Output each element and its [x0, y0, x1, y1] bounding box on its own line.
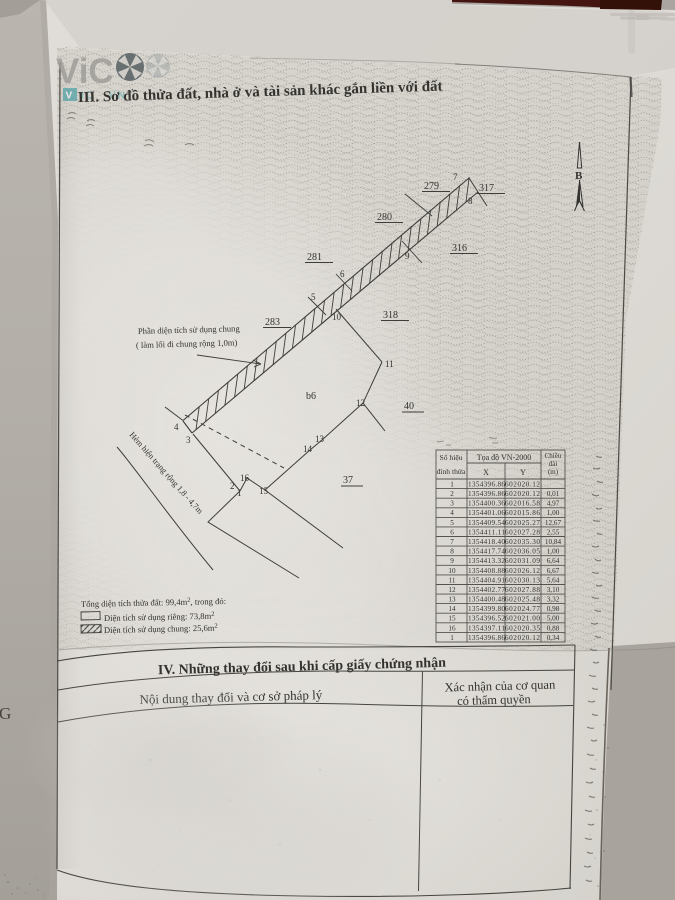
svg-text:602020.12: 602020.12	[505, 481, 540, 489]
svg-text:7: 7	[453, 172, 458, 182]
svg-text:B: B	[575, 170, 583, 182]
svg-text:3: 3	[450, 500, 454, 508]
svg-text:37: 37	[343, 475, 353, 486]
svg-text:1354417.74: 1354417.74	[468, 548, 505, 556]
svg-text:7: 7	[450, 538, 454, 546]
svg-text:1354397.11: 1354397.11	[468, 624, 505, 632]
svg-text:(m): (m)	[548, 468, 559, 476]
svg-text:16: 16	[240, 473, 250, 483]
svg-text:dài: dài	[549, 460, 558, 468]
svg-text:3: 3	[186, 435, 191, 445]
svg-text:1,00: 1,00	[547, 509, 560, 517]
svg-text:V: V	[66, 91, 73, 102]
svg-text:Y: Y	[520, 468, 526, 477]
svg-text:1: 1	[450, 481, 454, 489]
svg-text:4,97: 4,97	[547, 500, 560, 508]
svg-text:Chiều: Chiều	[545, 452, 562, 460]
svg-text:8: 8	[468, 196, 473, 206]
svg-text:3,10: 3,10	[547, 586, 560, 594]
svg-text:1354396.86: 1354396.86	[468, 634, 505, 642]
svg-text:317: 317	[479, 183, 494, 194]
svg-text:602027.88: 602027.88	[505, 586, 540, 594]
svg-text:1354401.06: 1354401.06	[468, 509, 505, 517]
svg-text:1354400.48: 1354400.48	[468, 596, 505, 604]
svg-text:280: 280	[377, 212, 392, 223]
svg-text:1354396.52: 1354396.52	[468, 615, 505, 623]
svg-text:40: 40	[404, 401, 414, 412]
svg-text:12: 12	[356, 398, 365, 408]
svg-text:1354404.91: 1354404.91	[468, 576, 505, 584]
svg-text:9: 9	[405, 251, 410, 261]
svg-text:12: 12	[448, 586, 456, 594]
svg-text:5,00: 5,00	[547, 615, 560, 623]
svg-text:13: 13	[315, 434, 325, 444]
svg-text:602027.28: 602027.28	[505, 528, 540, 536]
svg-text:10: 10	[448, 567, 456, 575]
svg-text:2: 2	[230, 481, 235, 491]
svg-text:4: 4	[174, 422, 179, 432]
svg-text:1354418.40: 1354418.40	[468, 538, 505, 546]
svg-text:602020.12: 602020.12	[505, 490, 540, 498]
svg-text:5: 5	[311, 292, 316, 302]
svg-text:602025.48: 602025.48	[505, 596, 540, 604]
svg-text:2,55: 2,55	[547, 528, 560, 536]
svg-text:3,32: 3,32	[547, 596, 560, 604]
svg-text:279: 279	[424, 181, 439, 192]
svg-text:602025.27: 602025.27	[505, 519, 540, 527]
svg-text:0,01: 0,01	[547, 490, 560, 498]
svg-text:10,84: 10,84	[545, 538, 562, 546]
svg-text:6,64: 6,64	[547, 557, 560, 565]
svg-text:9: 9	[450, 557, 454, 565]
svg-text:1354396.86: 1354396.86	[468, 481, 505, 489]
svg-text:1354396.86: 1354396.86	[468, 490, 505, 498]
svg-text:6,67: 6,67	[547, 567, 560, 575]
svg-text:G: G	[0, 704, 11, 723]
svg-text:có thẩm quyền: có thẩm quyền	[457, 692, 532, 708]
svg-text:14: 14	[448, 605, 456, 613]
svg-text:6: 6	[340, 269, 345, 279]
svg-text:602020.35: 602020.35	[505, 624, 540, 632]
svg-text:11: 11	[449, 576, 456, 584]
svg-text:602030.13: 602030.13	[505, 576, 540, 584]
svg-text:602020.12: 602020.12	[505, 634, 540, 642]
svg-text:1: 1	[450, 634, 454, 642]
svg-text:1,00: 1,00	[547, 548, 560, 556]
svg-text:6: 6	[450, 528, 454, 536]
svg-text:0,98: 0,98	[547, 605, 560, 613]
svg-text:1354399.80: 1354399.80	[468, 605, 505, 613]
svg-text:1: 1	[237, 488, 242, 498]
svg-text:602024.77: 602024.77	[505, 605, 540, 613]
svg-text:15: 15	[259, 486, 269, 496]
svg-text:0,34: 0,34	[547, 634, 560, 642]
svg-text:14: 14	[303, 444, 313, 454]
svg-text:5,64: 5,64	[547, 576, 560, 584]
svg-text:602035.30: 602035.30	[505, 538, 540, 546]
svg-text:b6: b6	[306, 391, 316, 402]
svg-text:1354411.11: 1354411.11	[468, 528, 505, 536]
svg-text:8: 8	[450, 548, 454, 556]
svg-text:283: 283	[265, 317, 280, 328]
svg-text:602015.86: 602015.86	[505, 509, 540, 517]
svg-text:1354400.36: 1354400.36	[468, 500, 505, 508]
svg-text:X: X	[483, 468, 489, 477]
svg-text:1354402.77: 1354402.77	[468, 586, 505, 594]
svg-text:16: 16	[448, 624, 456, 632]
svg-text:10: 10	[332, 312, 342, 322]
svg-text:602021.00: 602021.00	[505, 615, 540, 623]
svg-text:281: 281	[307, 252, 322, 263]
svg-text:1354408.88: 1354408.88	[468, 567, 505, 575]
svg-text:4: 4	[450, 509, 454, 517]
svg-text:Số hiệu: Số hiệu	[440, 453, 463, 462]
svg-text:602036.05: 602036.05	[505, 548, 540, 556]
svg-text:Tọa độ VN-2000: Tọa độ VN-2000	[477, 453, 532, 462]
svg-text:11: 11	[385, 359, 394, 369]
svg-text:12,67: 12,67	[545, 519, 562, 527]
svg-text:602016.58: 602016.58	[505, 500, 540, 508]
svg-text:316: 316	[452, 243, 467, 254]
svg-text:1354409.54: 1354409.54	[468, 519, 505, 527]
svg-text:13: 13	[448, 596, 456, 604]
svg-text:0,88: 0,88	[547, 624, 560, 632]
svg-text:602031.09: 602031.09	[505, 557, 540, 565]
svg-text:đỉnh thửa: đỉnh thửa	[437, 467, 466, 476]
svg-text:1354413.32: 1354413.32	[468, 557, 505, 565]
svg-text:2: 2	[450, 490, 454, 498]
svg-text:ViC: ViC	[56, 52, 114, 91]
svg-text:602026.12: 602026.12	[505, 567, 540, 575]
svg-text:15: 15	[448, 615, 456, 623]
svg-text:5: 5	[450, 519, 454, 527]
svg-text:318: 318	[383, 310, 398, 321]
